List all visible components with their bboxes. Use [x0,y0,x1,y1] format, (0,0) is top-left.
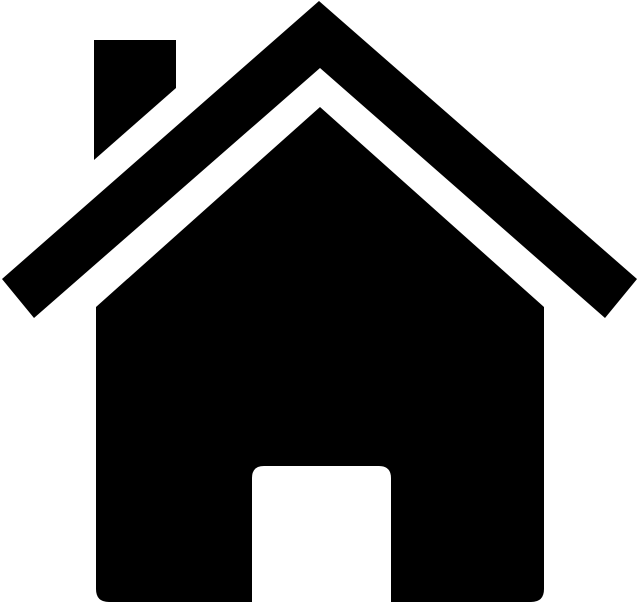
house-icon-canvas [0,0,640,605]
house-icon [0,0,640,605]
